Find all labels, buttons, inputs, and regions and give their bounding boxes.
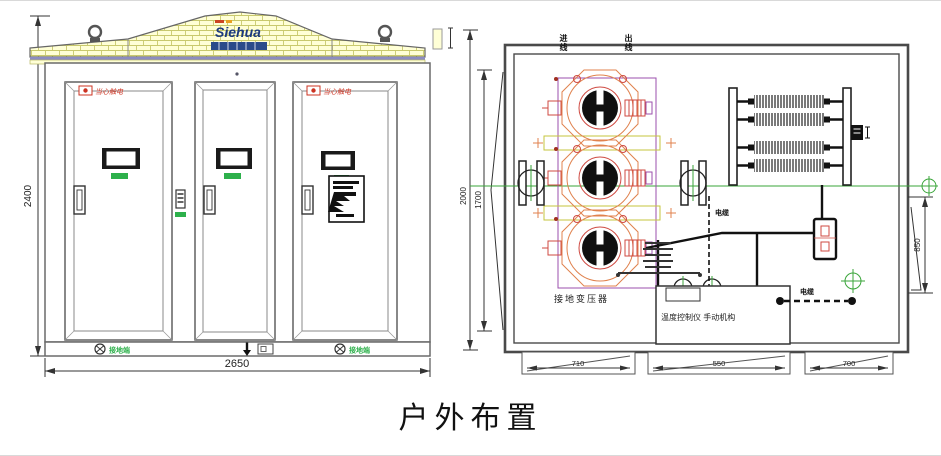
warning-text: 当心触电 [323, 88, 352, 96]
engineering-drawing: 2400 Siehua [0, 0, 941, 392]
door-handle[interactable] [74, 186, 85, 214]
ground-terminal-icon [335, 344, 345, 354]
plan-top-label-outgoing: 出线 [623, 34, 634, 66]
door-handle[interactable] [302, 186, 313, 214]
cabinet-door-middle [195, 82, 275, 340]
display-window [102, 148, 140, 169]
plan-inner-height-dim-text: 1700 [474, 191, 483, 209]
tray-label: 电缆 [800, 287, 814, 296]
ground-label-right: 接地端 [349, 346, 370, 355]
brand-logo: Siehua [211, 20, 267, 50]
lifting-eye-icon [89, 26, 101, 42]
cabinet-base: 接地端 接地端 [45, 342, 430, 356]
brand-logo-text: Siehua [215, 24, 261, 40]
plan-left-dimensions: 2000 1700 [459, 30, 503, 350]
trench-middle-dim-text: 550 [713, 359, 726, 368]
left-slope-mark [491, 72, 503, 330]
cabinet-top-dot [235, 72, 238, 75]
warning-text: 当心触电 [95, 88, 124, 96]
base-plate-icon [258, 344, 273, 354]
skid-wheel-right [680, 161, 706, 205]
front-elevation-view: 2400 Siehua [23, 12, 453, 377]
cabinet-door-right: 当心触电 [293, 82, 397, 340]
plan-view: 2000 1700 [459, 30, 938, 374]
display-window [216, 148, 252, 169]
skid-wheel-left [518, 161, 544, 205]
roof-edge-detail [433, 28, 453, 49]
center-lock[interactable] [175, 190, 186, 217]
screenshot-canvas: 2400 Siehua [0, 0, 941, 456]
roof-purple-band [30, 57, 425, 60]
lifting-eye-icon [379, 26, 391, 42]
trench-left-dim-text: 710 [572, 359, 585, 368]
transformer-label: 接地变压器 [554, 293, 609, 304]
display-window [321, 151, 355, 170]
front-width-dimension: 2650 [45, 358, 430, 377]
actuator-component [814, 219, 836, 259]
cabinet-door-left: 当心触电 [65, 82, 172, 340]
plan-right-dim-text: 850 [913, 238, 922, 252]
trench-right: 700 [805, 352, 893, 374]
green-sticker [175, 212, 186, 217]
roof: Siehua [30, 12, 453, 64]
green-sticker [111, 173, 128, 179]
plan-right-dimension: 850 [908, 197, 933, 293]
front-height-dim-text: 2400 [23, 184, 34, 207]
temperature-control-box: 温度控制仪 手动机构 [656, 286, 790, 344]
trench-left: 710 [522, 352, 635, 374]
cable-label: 电缆 [715, 208, 729, 217]
page-title: 户外布置 [0, 393, 941, 437]
trench-middle: 550 [648, 352, 790, 374]
door-handle[interactable] [204, 186, 215, 214]
control-box-label: 温度控制仪 手动机构 [661, 312, 735, 322]
trench-right-dim-text: 700 [843, 359, 856, 368]
front-width-dim-text: 2650 [225, 358, 249, 370]
plan-top-label-incoming: 进线 [558, 34, 569, 66]
resistor-terminal [851, 125, 870, 140]
green-sticker [224, 173, 241, 179]
ground-terminal-icon [95, 344, 105, 354]
ground-label-left: 接地端 [109, 346, 130, 355]
plan-outer-height-dim-text: 2000 [459, 187, 468, 205]
nameplate-diagram [328, 176, 364, 222]
